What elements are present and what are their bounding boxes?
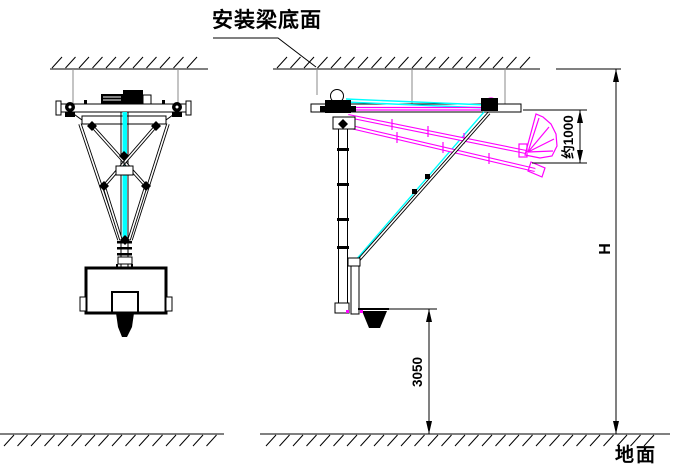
cables xyxy=(346,99,487,261)
hatch-stroke xyxy=(72,435,82,446)
hatch-stroke xyxy=(442,435,452,446)
pole-collar xyxy=(337,183,349,186)
trolley-left xyxy=(320,90,356,114)
center-column xyxy=(121,112,128,268)
ground: 地面 xyxy=(0,434,670,466)
leader-line xyxy=(213,38,316,67)
hatch-stroke xyxy=(466,57,476,68)
hatch-stroke xyxy=(112,435,122,446)
hatch-stroke xyxy=(577,435,587,446)
hatch-stroke xyxy=(291,57,301,68)
hatch-stroke xyxy=(361,435,371,446)
hatch-stroke xyxy=(347,435,357,446)
beam-bolt xyxy=(84,100,87,104)
hatch-stroke xyxy=(18,435,28,446)
beam-endplate xyxy=(186,101,191,115)
hatch-stroke xyxy=(509,435,519,446)
diagonal-strut xyxy=(357,113,489,262)
column-collars xyxy=(117,241,132,268)
dim-fold-clearance-text: 约1000 xyxy=(560,115,576,159)
hatch-stroke xyxy=(180,435,190,446)
hatch-stroke xyxy=(120,57,130,68)
hatch-stroke xyxy=(147,57,157,68)
front-view xyxy=(56,69,191,337)
hatch-stroke xyxy=(590,435,600,446)
net-side xyxy=(362,311,387,328)
strut-collar xyxy=(412,189,417,194)
hatch-stroke xyxy=(372,57,382,68)
hatch-stroke xyxy=(207,435,217,446)
hatch-stroke xyxy=(307,435,317,446)
beam-bottom-label: 安装梁底面 xyxy=(212,8,322,32)
backboard-side xyxy=(346,258,389,328)
hatch-stroke xyxy=(280,435,290,446)
beam-endplate xyxy=(56,101,61,115)
hatch-stroke xyxy=(31,435,41,446)
hatch-stroke xyxy=(496,435,506,446)
column-cable-highlight xyxy=(123,112,128,240)
hatch-stroke xyxy=(507,57,517,68)
ground-hatch-right xyxy=(266,435,654,446)
hatch-stroke xyxy=(482,435,492,446)
trolley-right xyxy=(481,98,498,111)
hatch-stroke xyxy=(58,435,68,446)
hatch-stroke xyxy=(604,435,614,446)
hatch-stroke xyxy=(399,57,409,68)
side-view xyxy=(311,69,557,328)
hatch-stroke xyxy=(550,435,560,446)
hatch-stroke xyxy=(66,57,76,68)
hatch-stroke xyxy=(126,435,136,446)
hatch-stroke xyxy=(45,435,55,446)
backboard-tab xyxy=(166,297,172,311)
hatch-stroke xyxy=(385,57,395,68)
dim-ceiling-height-text: H xyxy=(597,243,614,255)
hatch-stroke xyxy=(374,435,384,446)
hatch-stroke xyxy=(174,57,184,68)
hatch-stroke xyxy=(52,57,62,68)
hatch-stroke xyxy=(520,57,530,68)
net-front xyxy=(116,313,134,337)
backboard-outer xyxy=(86,268,166,313)
hatch-stroke xyxy=(193,435,203,446)
hatch-stroke xyxy=(93,57,103,68)
hatch-stroke xyxy=(99,435,109,446)
ground-hatch-left xyxy=(4,435,217,446)
hatch-stroke xyxy=(523,435,533,446)
drawing-canvas: 安装梁底面 xyxy=(0,0,689,476)
mounting-beam xyxy=(57,104,190,112)
hatch-stroke xyxy=(85,435,95,446)
hatch-stroke xyxy=(469,435,479,446)
hatch-stroke xyxy=(401,435,411,446)
hatch-stroke xyxy=(293,435,303,446)
hatch-stroke xyxy=(388,435,398,446)
hatch-stroke xyxy=(480,57,490,68)
hatch-stroke xyxy=(453,57,463,68)
dim-rim-height-text: 3050 xyxy=(410,357,425,387)
backboard-edge xyxy=(351,266,359,314)
backboard-tab xyxy=(80,297,86,311)
hatch-stroke xyxy=(493,57,503,68)
hatch-stroke xyxy=(160,57,170,68)
hatch-stroke xyxy=(139,435,149,446)
hatch-stroke xyxy=(4,435,14,446)
pole-collar xyxy=(337,148,349,151)
pole-side xyxy=(335,129,349,313)
board-mount xyxy=(348,258,360,266)
hatch-stroke xyxy=(133,57,143,68)
pole-collar xyxy=(337,218,349,221)
hatch-stroke xyxy=(277,57,287,68)
hatch-stroke xyxy=(345,57,355,68)
beam-bolt xyxy=(162,100,165,104)
hoist-motor xyxy=(101,90,151,104)
strut-collar xyxy=(425,174,430,179)
hatch-stroke xyxy=(536,435,546,446)
hatch-stroke xyxy=(153,435,163,446)
beam-bottom-callout: 安装梁底面 xyxy=(212,8,322,67)
ceiling xyxy=(50,57,621,69)
dimension-ceiling-height: H xyxy=(597,69,619,434)
pulley-left xyxy=(65,102,75,117)
hatch-stroke xyxy=(439,57,449,68)
hatch-stroke xyxy=(428,435,438,446)
rim-bolt xyxy=(360,310,363,313)
hatch-stroke xyxy=(334,435,344,446)
ceiling-hatch-left xyxy=(52,57,197,68)
hatch-stroke xyxy=(166,435,176,446)
hatch-stroke xyxy=(79,57,89,68)
hatch-stroke xyxy=(318,57,328,68)
technical-drawing: 安装梁底面 xyxy=(0,0,689,476)
rim-bolt xyxy=(346,310,349,313)
hatch-stroke xyxy=(415,435,425,446)
hatch-stroke xyxy=(412,57,422,68)
truss-bracket xyxy=(116,166,133,175)
ground-label: 地面 xyxy=(615,443,657,466)
pole-collar xyxy=(337,246,349,249)
hatch-stroke xyxy=(106,57,116,68)
hatch-stroke xyxy=(331,57,341,68)
hatch-stroke xyxy=(455,435,465,446)
hatch-stroke xyxy=(563,435,573,446)
backboard-front xyxy=(80,268,172,337)
hatch-stroke xyxy=(358,57,368,68)
hatch-stroke xyxy=(187,57,197,68)
backboard-target xyxy=(112,292,138,313)
hatch-stroke xyxy=(426,57,436,68)
hatch-stroke xyxy=(320,435,330,446)
hatch-stroke xyxy=(266,435,276,446)
